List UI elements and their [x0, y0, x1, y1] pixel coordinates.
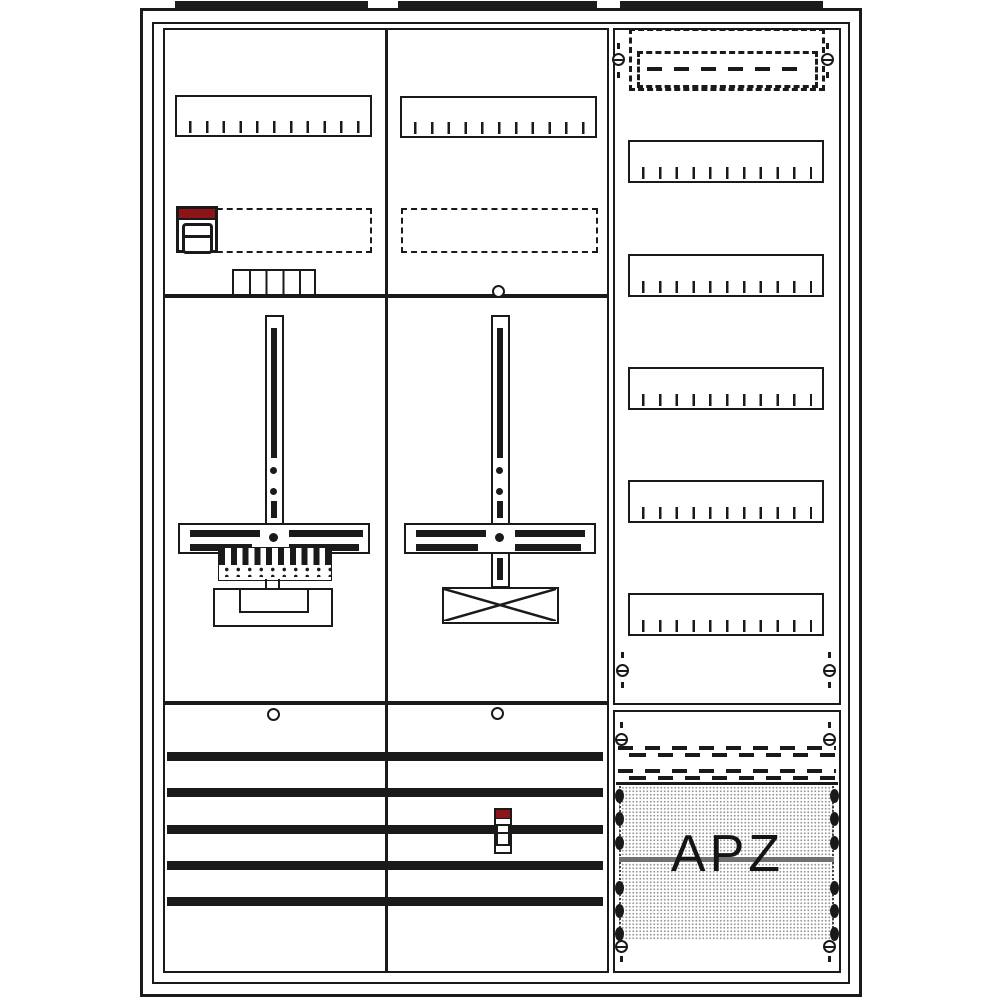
cover-clip: [830, 789, 839, 803]
cover-clip: [830, 927, 839, 941]
busbar: [167, 897, 603, 906]
breaker-core: [182, 223, 213, 254]
din-rail: [628, 593, 824, 636]
breaker-red-cap: [179, 209, 215, 220]
apz-dash-row: [618, 746, 836, 750]
screw-icon: [823, 940, 836, 953]
rail-ticks: [189, 121, 360, 133]
din-rail: [628, 367, 824, 410]
lower-terminal-cover-inner: [239, 588, 309, 613]
plate-slot: [271, 328, 277, 458]
reserved-space-dash-row: [647, 67, 808, 71]
plate-slot: [497, 558, 503, 580]
plate-slot: [497, 501, 503, 518]
crossbar-slot: [416, 544, 478, 551]
rail-ticks: [642, 394, 812, 406]
breaker-core: [496, 824, 510, 846]
screw-tick: [828, 722, 831, 728]
screw-tick: [828, 956, 831, 962]
apz-top-line: [616, 782, 838, 785]
screw-icon: [821, 53, 834, 66]
cover-clip: [615, 904, 624, 918]
crossbar-slot: [289, 530, 363, 537]
screw-tick: [620, 956, 623, 962]
hatch-dots: [219, 565, 331, 577]
cover-clip: [615, 836, 624, 850]
din-rail: [400, 96, 597, 138]
cover-clip: [830, 812, 839, 826]
reserved-space-dashed: [401, 208, 598, 253]
plate-dot: [270, 467, 277, 474]
din-rail: [175, 95, 372, 137]
screw-icon: [823, 664, 836, 677]
crossbar-slot: [515, 544, 581, 551]
rail-ticks: [642, 281, 812, 293]
crossed-box-x: [444, 589, 556, 621]
screw-tick: [621, 652, 624, 658]
screw-tick: [617, 43, 620, 49]
screw-tick: [828, 682, 831, 688]
crossbar-center-dot: [269, 533, 278, 542]
screw-tick: [826, 43, 829, 49]
apz-dash-row: [618, 776, 836, 780]
plate-dot: [496, 467, 503, 474]
crossbar-center-dot: [495, 533, 504, 542]
din-rail: [628, 254, 824, 297]
terminal-block: [232, 269, 316, 297]
hatch-stripes: [219, 548, 331, 565]
busbar: [167, 861, 603, 870]
mounting-hole: [267, 708, 280, 721]
screw-icon: [615, 733, 628, 746]
cover-clip: [615, 927, 624, 941]
breaker-red-cap: [496, 810, 510, 819]
screw-tick: [826, 72, 829, 78]
plate-dot: [496, 488, 503, 495]
crossbar-slot: [190, 530, 260, 537]
cover-clip: [830, 904, 839, 918]
screw-tick: [620, 722, 623, 728]
apz-dash-row: [618, 769, 836, 773]
apz-dash-row: [618, 753, 836, 757]
plate-slot: [271, 501, 277, 518]
mounting-hole: [492, 285, 505, 298]
cover-clip: [615, 881, 624, 895]
busbar-breaker-symbol: [494, 808, 512, 854]
busbar: [167, 788, 603, 797]
crossbar-slot: [515, 530, 585, 537]
screw-tick: [617, 72, 620, 78]
column-divider: [385, 705, 388, 971]
rail-ticks: [414, 122, 585, 134]
cover-clip: [615, 789, 624, 803]
rail-ticks: [642, 507, 812, 519]
screw-tick: [828, 652, 831, 658]
plate-dot: [270, 488, 277, 495]
cover-clip: [830, 881, 839, 895]
column-divider: [385, 30, 388, 703]
crossed-box-symbol: [442, 587, 559, 624]
terminal-strip-hatched: [218, 547, 332, 581]
din-rail: [628, 480, 824, 523]
meter-cabinet-diagram: APZ: [0, 0, 1000, 1000]
din-rail: [628, 140, 824, 183]
cover-clip: [615, 812, 624, 826]
screw-tick: [621, 682, 624, 688]
crossbar-slot: [416, 530, 486, 537]
screw-icon: [615, 940, 628, 953]
rail-ticks: [642, 167, 812, 179]
screw-icon: [823, 733, 836, 746]
screw-icon: [612, 53, 625, 66]
rail-ticks: [642, 620, 812, 632]
cover-clip: [830, 836, 839, 850]
screw-icon: [616, 664, 629, 677]
apz-label: APZ: [630, 824, 825, 884]
plate-slot: [497, 328, 503, 458]
main-breaker-symbol: [176, 206, 218, 253]
mounting-hole: [491, 707, 504, 720]
busbar: [167, 825, 603, 834]
busbar: [167, 752, 603, 761]
